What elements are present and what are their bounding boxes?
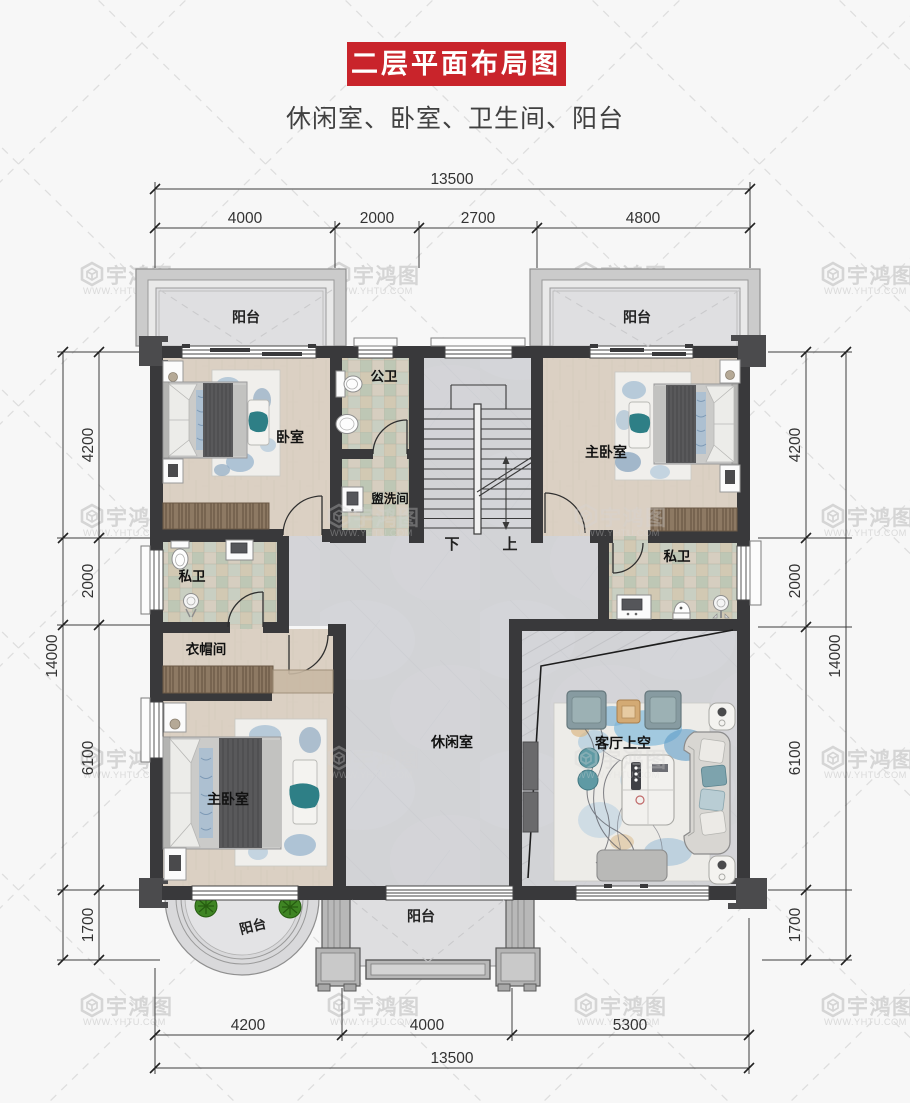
svg-text:阳台: 阳台	[407, 908, 435, 924]
svg-text:休闲室: 休闲室	[430, 734, 473, 750]
svg-text:衣帽间: 衣帽间	[186, 641, 227, 657]
svg-text:4000: 4000	[228, 210, 263, 227]
svg-text:1700: 1700	[787, 907, 804, 942]
svg-text:二层平面布局图: 二层平面布局图	[351, 49, 561, 79]
svg-text:私卫: 私卫	[664, 548, 692, 564]
svg-text:公卫: 公卫	[371, 369, 398, 384]
svg-text:13500: 13500	[430, 171, 473, 188]
svg-text:主卧室: 主卧室	[207, 791, 249, 807]
svg-text:客厅上空: 客厅上空	[594, 735, 651, 751]
svg-text:上: 上	[502, 536, 517, 553]
svg-text:私卫: 私卫	[179, 568, 206, 584]
svg-text:14000: 14000	[44, 634, 61, 677]
svg-text:主卧室: 主卧室	[585, 444, 627, 460]
svg-text:5300: 5300	[613, 1017, 648, 1034]
svg-text:阳台: 阳台	[623, 309, 651, 325]
svg-text:4800: 4800	[626, 210, 661, 227]
svg-text:阳台: 阳台	[232, 309, 260, 325]
svg-text:盥洗间: 盥洗间	[371, 491, 409, 506]
svg-text:卧室: 卧室	[276, 429, 304, 445]
svg-text:下: 下	[444, 536, 459, 553]
svg-text:4200: 4200	[231, 1017, 266, 1034]
svg-text:2700: 2700	[461, 210, 496, 227]
svg-text:14000: 14000	[827, 634, 844, 677]
svg-text:6100: 6100	[787, 740, 804, 775]
svg-text:休闲室、卧室、卫生间、阳台: 休闲室、卧室、卫生间、阳台	[286, 105, 624, 133]
svg-text:13500: 13500	[430, 1050, 473, 1067]
svg-text:4200: 4200	[787, 427, 804, 462]
svg-text:4200: 4200	[80, 427, 97, 462]
svg-text:6100: 6100	[80, 740, 97, 775]
svg-text:2000: 2000	[80, 563, 97, 598]
svg-text:2000: 2000	[360, 210, 395, 227]
svg-text:4000: 4000	[410, 1017, 445, 1034]
svg-text:2000: 2000	[787, 563, 804, 598]
svg-text:1700: 1700	[80, 907, 97, 942]
